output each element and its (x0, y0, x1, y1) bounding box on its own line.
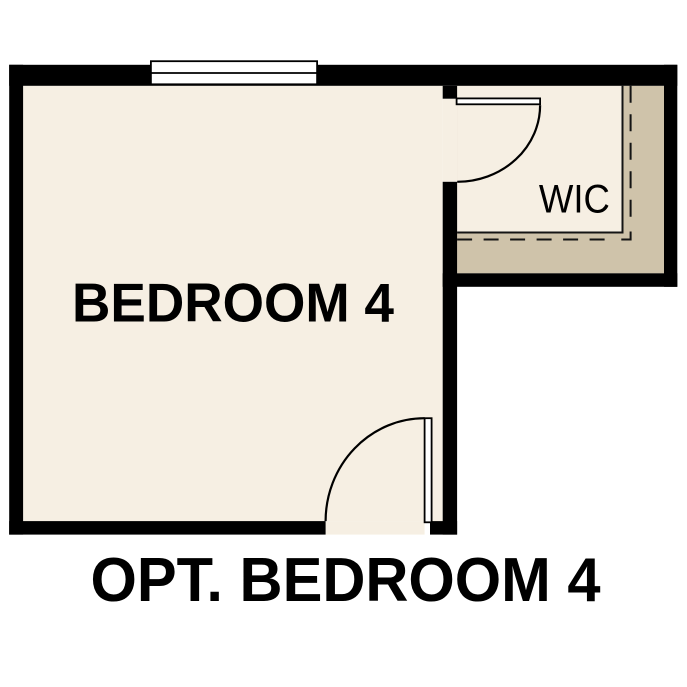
svg-text:WIC: WIC (539, 177, 610, 222)
svg-text:BEDROOM 4: BEDROOM 4 (72, 273, 395, 334)
svg-text:OPT. BEDROOM 4: OPT. BEDROOM 4 (91, 546, 601, 615)
